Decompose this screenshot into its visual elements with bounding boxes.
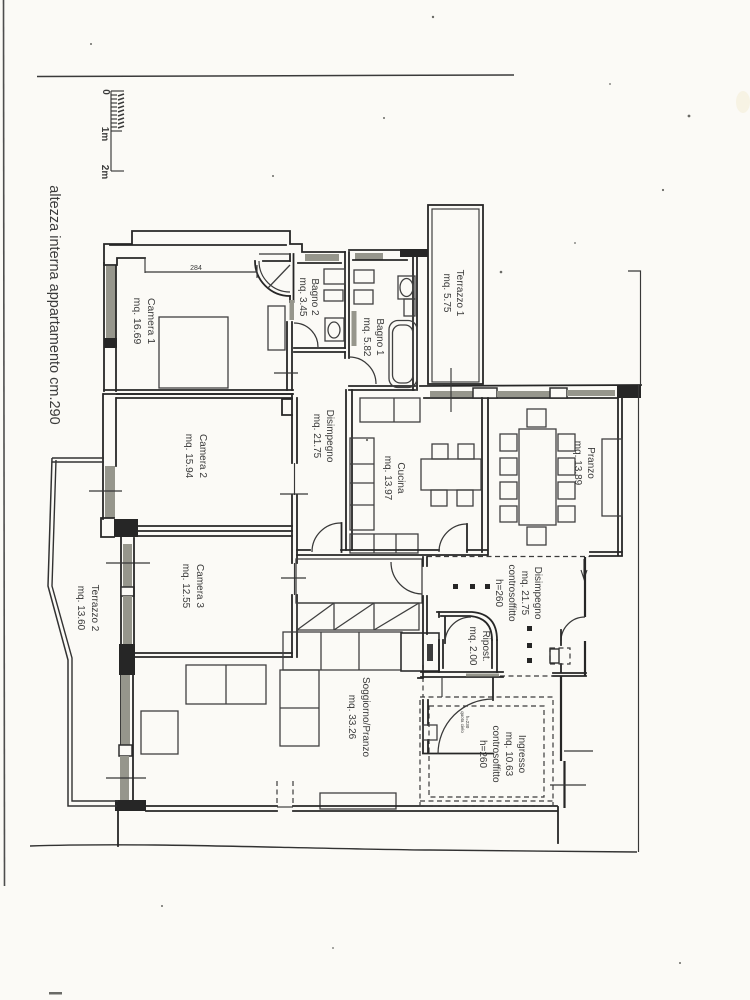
svg-text:controsoffitto: controsoffitto bbox=[506, 564, 517, 622]
svg-text:2m: 2m bbox=[99, 165, 110, 180]
svg-text:controsoffitto: controsoffitto bbox=[490, 725, 501, 783]
svg-text:Soggiorno/Pranzo: Soggiorno/Pranzo bbox=[360, 677, 371, 757]
svg-text:0: 0 bbox=[100, 89, 111, 95]
svg-text:Disimpegno: Disimpegno bbox=[532, 567, 543, 620]
svg-text:h=230: h=230 bbox=[465, 716, 470, 729]
svg-text:1m: 1m bbox=[99, 127, 110, 142]
svg-text:mq. 2.00: mq. 2.00 bbox=[467, 627, 478, 666]
svg-text:Bagno 1: Bagno 1 bbox=[374, 318, 385, 356]
svg-text:mq. 15.94: mq. 15.94 bbox=[183, 434, 194, 479]
svg-text:mq. 10.63: mq. 10.63 bbox=[503, 732, 514, 777]
svg-text:Cucina: Cucina bbox=[395, 462, 406, 494]
svg-text:mq. 3.45: mq. 3.45 bbox=[297, 278, 308, 317]
svg-text:mq. 5.82: mq. 5.82 bbox=[361, 318, 372, 357]
svg-text:Pranzo: Pranzo bbox=[585, 447, 596, 479]
svg-text:mq. 21.75: mq. 21.75 bbox=[519, 571, 530, 616]
svg-text:Terrazzo 2: Terrazzo 2 bbox=[89, 585, 100, 632]
svg-text:Camera 1: Camera 1 bbox=[145, 298, 157, 344]
svg-text:Terrazzo 1: Terrazzo 1 bbox=[454, 270, 465, 317]
svg-text:Bagno 2: Bagno 2 bbox=[309, 278, 320, 316]
svg-text:mq. 21.75: mq. 21.75 bbox=[311, 414, 322, 459]
svg-text:mq. 5.75: mq. 5.75 bbox=[441, 274, 452, 313]
svg-text:mq. 16.69: mq. 16.69 bbox=[131, 298, 143, 345]
svg-text:h=260: h=260 bbox=[477, 740, 488, 769]
svg-text:mq. 33.26: mq. 33.26 bbox=[346, 695, 357, 740]
svg-text:mq. 12.55: mq. 12.55 bbox=[180, 564, 191, 609]
svg-text:h=260: h=260 bbox=[493, 579, 504, 608]
svg-text:Camera 3: Camera 3 bbox=[194, 564, 205, 608]
svg-text:altezza interna appartamento c: altezza interna appartamento cm.290 bbox=[46, 185, 62, 424]
svg-text:mq. 13.60: mq. 13.60 bbox=[75, 586, 86, 631]
svg-text:mq. 13.89: mq. 13.89 bbox=[572, 441, 583, 486]
svg-text:Ripost.: Ripost. bbox=[480, 630, 491, 661]
svg-text:Ingresso: Ingresso bbox=[516, 735, 527, 774]
svg-text:mq. 13.97: mq. 13.97 bbox=[382, 456, 393, 501]
svg-text:Disimpegno: Disimpegno bbox=[324, 410, 335, 463]
svg-text:quota cielo: quota cielo bbox=[460, 711, 465, 733]
svg-text:Camera 2: Camera 2 bbox=[197, 434, 208, 478]
svg-text:284: 284 bbox=[190, 265, 202, 272]
